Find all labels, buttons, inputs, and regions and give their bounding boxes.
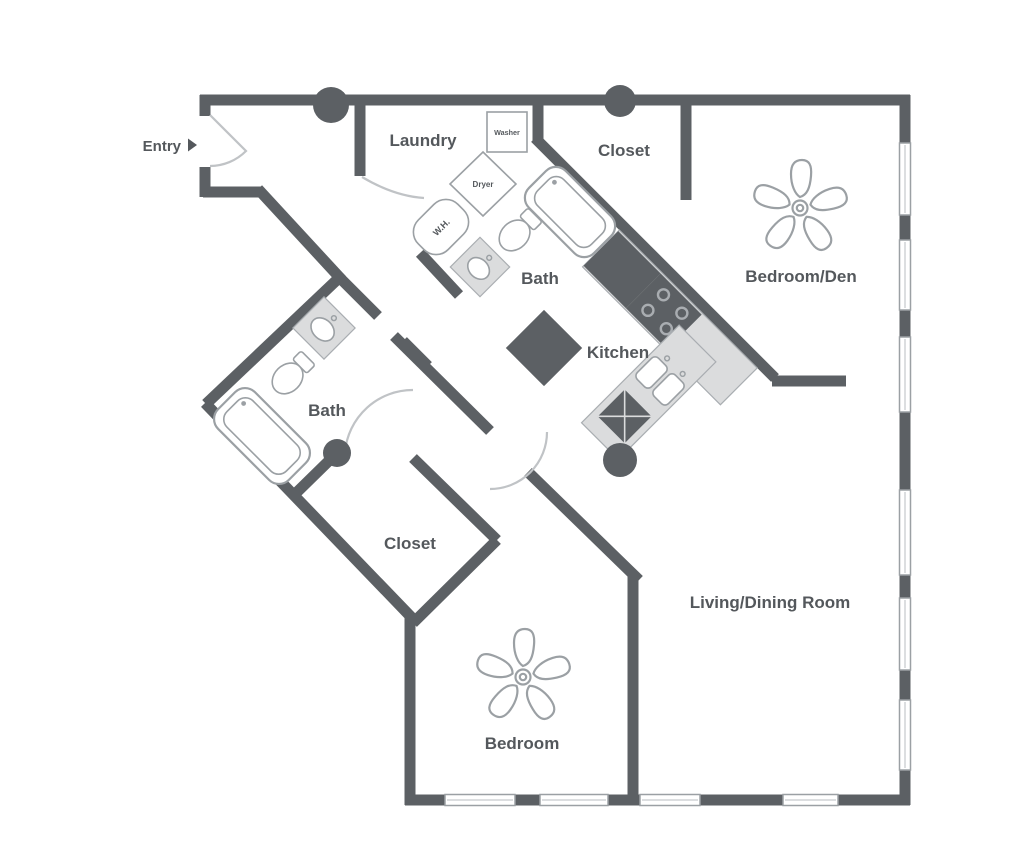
ceiling-fan-icon — [475, 629, 573, 722]
window — [900, 143, 911, 215]
room-label-bath-left: Bath — [308, 401, 346, 420]
room-label-bath-top: Bath — [521, 269, 559, 288]
washer-label: Washer — [494, 128, 520, 137]
fan-blade — [808, 185, 849, 216]
window — [445, 795, 515, 806]
window — [900, 598, 911, 670]
wall-foyer-diagonal — [258, 189, 342, 280]
room-label-bedroom-den: Bedroom/Den — [745, 267, 856, 286]
refrigerator — [506, 310, 582, 386]
toilet — [266, 348, 318, 400]
column — [323, 439, 351, 467]
ceiling-fan-icon — [752, 160, 850, 253]
wall-corridor-ne — [394, 336, 490, 431]
column — [603, 443, 637, 477]
door-arc-laundry — [362, 177, 424, 198]
room-label-living-dining: Living/Dining Room — [690, 593, 851, 612]
fan-blade — [763, 210, 801, 252]
fan-blade — [791, 160, 811, 197]
window — [900, 490, 911, 575]
dryer-label: Dryer — [473, 180, 494, 189]
door-arc-entry — [210, 115, 246, 166]
wall-closet-mid-ne — [413, 458, 497, 540]
room-label-kitchen: Kitchen — [587, 343, 649, 362]
fan-hub-center — [797, 205, 803, 211]
refrigerator-group — [506, 310, 582, 386]
wall-bath-top-sw — [420, 253, 459, 295]
column — [313, 87, 349, 123]
fan-blade — [520, 681, 558, 723]
floor-plan-drawing: Washer Dryer W.H. — [0, 0, 1024, 868]
wall-bedroom-ne — [528, 472, 639, 580]
window — [640, 795, 700, 806]
column — [604, 85, 636, 117]
fan-blade — [531, 654, 572, 685]
fan-blade — [752, 183, 793, 214]
room-label-closet-top: Closet — [598, 141, 650, 160]
wall-bath-left-ne-a — [339, 277, 378, 316]
fan-blade — [486, 679, 524, 721]
bathtub — [208, 382, 315, 489]
fan-blade — [475, 652, 516, 683]
floor-plan-canvas: Washer Dryer W.H. — [0, 0, 1024, 868]
room-label-laundry: Laundry — [389, 131, 457, 150]
fan-blade — [514, 629, 534, 666]
window — [540, 795, 608, 806]
entry-arrow-icon — [188, 139, 197, 152]
window — [783, 795, 838, 806]
window — [900, 240, 911, 310]
fan-hub-center — [520, 674, 526, 680]
room-label-closet-mid: Closet — [384, 534, 436, 553]
window — [900, 700, 911, 770]
fan-blade — [797, 212, 835, 254]
room-label-bedroom: Bedroom — [485, 734, 560, 753]
door-arc-bath-left — [345, 390, 413, 452]
entry-label: Entry — [143, 138, 182, 155]
window — [900, 337, 911, 412]
